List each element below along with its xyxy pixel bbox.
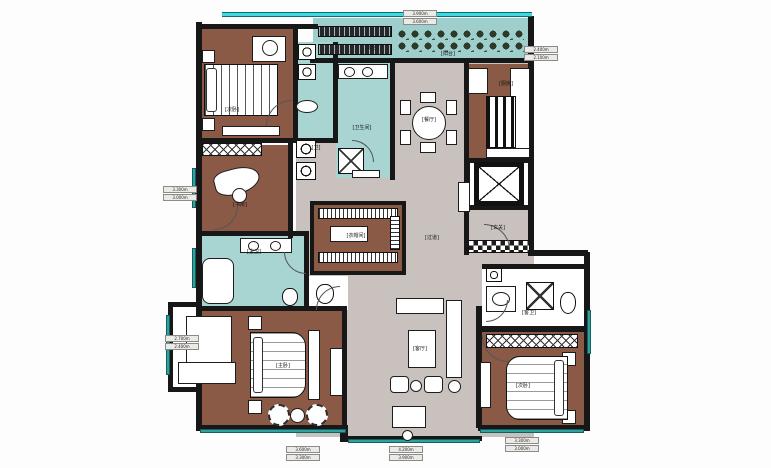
room-label: [客卫] [506, 310, 552, 316]
floor-plan: [阳台][阳台][次卧][卫][卫生间][厨房][餐厅][书房][主卫][衣帽间… [0, 0, 771, 468]
dimension-text: 2.700m [165, 335, 199, 342]
closet-rack [318, 208, 398, 219]
window-bath-left [192, 248, 196, 288]
toilet [560, 292, 576, 314]
dimension-label: 3.600m3.300m [286, 446, 320, 462]
dimension-text: 3.600m [286, 446, 320, 453]
dimension-text: 3.300m [505, 437, 539, 444]
wall-segment [310, 201, 314, 275]
piano [392, 406, 426, 428]
dimension-text: 2.400m [524, 46, 558, 53]
room-label: [书房] [217, 202, 263, 208]
bench [308, 330, 320, 400]
corner-table [448, 380, 461, 393]
toilet-top [298, 64, 316, 80]
tv-cabinet [222, 126, 280, 136]
wall-segment [288, 143, 293, 238]
wall-segment [528, 250, 588, 256]
dryer [296, 162, 316, 180]
toilet [282, 288, 298, 306]
room-label: [厨房] [483, 81, 529, 87]
closet-rack-side [390, 216, 400, 250]
armchair [390, 376, 409, 393]
window-bedroom-right-bottom [480, 429, 584, 433]
room-label: [阳台] [425, 51, 471, 57]
nightstand [202, 118, 215, 131]
pillow [554, 360, 564, 416]
window-right-side [587, 310, 591, 354]
room-label: [主卧] [260, 363, 306, 369]
dimension-label: 2.700m2.400m [165, 335, 199, 351]
console-table [458, 182, 470, 212]
wall-segment [310, 58, 532, 63]
dining-table [412, 106, 446, 140]
kitchen-counter [486, 148, 530, 158]
basin [344, 67, 355, 77]
room-label: [阳台] [349, 45, 395, 51]
room-label: [衣帽间] [333, 233, 379, 239]
window-living-bottom [348, 439, 480, 443]
dimension-text: 4.200m [389, 446, 423, 453]
washer [486, 268, 502, 282]
dimension-label: 3.900m3.600m [403, 10, 437, 26]
nightstand [202, 50, 215, 63]
dresser-mirror [262, 40, 278, 56]
room-label: [主卫] [231, 249, 277, 255]
dimension-label: 2.400m2.100m [524, 46, 558, 62]
room-label: [客厅] [397, 346, 443, 352]
dimension-label: 3.300m3.000m [505, 437, 539, 453]
wall-segment [310, 201, 406, 205]
wall-segment [390, 58, 395, 180]
room-label: [过道] [409, 235, 455, 241]
dimension-label: 4.200m3.900m [389, 446, 423, 462]
dining-chair [446, 130, 457, 145]
armchair [424, 376, 443, 393]
pillow [206, 68, 217, 112]
window-top [222, 12, 532, 17]
dining-chair [446, 100, 457, 115]
dimension-label: 3.300m3.000m [163, 186, 197, 202]
kitchen-cabinet [486, 96, 516, 148]
room-label: [餐厅] [406, 117, 452, 123]
closet-rack [318, 252, 398, 263]
side-table [290, 408, 305, 423]
elevator-shaft [474, 162, 524, 206]
dimension-text: 3.900m [403, 10, 437, 17]
sink-top [296, 100, 318, 113]
window-master-bottom [200, 429, 346, 433]
dining-chair [400, 100, 411, 115]
tv-cabinet [480, 362, 491, 408]
study-shelf [202, 143, 262, 156]
bathtub [202, 258, 234, 304]
sofa [446, 300, 462, 378]
desk-chair [232, 188, 247, 203]
dimension-text: 3.600m [403, 18, 437, 25]
dimension-text: 3.000m [505, 445, 539, 452]
dimension-text: 3.300m [286, 454, 320, 461]
dimension-text: 3.300m [163, 186, 197, 193]
basin [362, 67, 373, 77]
wall-segment [310, 271, 406, 275]
nightstand [248, 316, 262, 330]
room-label: [玄关] [475, 225, 521, 231]
room-label: [次卧] [209, 107, 255, 113]
bath-mat [352, 170, 380, 178]
dining-chair [420, 142, 436, 153]
wall-segment [196, 24, 318, 29]
dining-chair [420, 92, 436, 103]
shower [526, 282, 554, 310]
drying-rack [318, 26, 392, 37]
wall-segment [196, 231, 308, 236]
room-label: [卫生间] [339, 125, 385, 131]
room-label: [卫] [293, 145, 339, 151]
sofa [396, 298, 444, 314]
wall-segment [333, 42, 338, 140]
tv-cabinet [330, 348, 343, 396]
nightstand [248, 400, 262, 414]
dining-chair [400, 130, 411, 145]
dimension-text: 3.900m [389, 454, 423, 461]
dimension-text: 2.400m [165, 343, 199, 350]
wall-segment [478, 326, 586, 332]
wall-segment [168, 387, 200, 392]
lounge-chair [306, 404, 328, 426]
dimension-text: 2.100m [524, 54, 558, 61]
washer [298, 44, 316, 60]
room-label: [次卧] [500, 383, 546, 389]
lounge-chair [268, 404, 290, 426]
side-table [410, 380, 422, 392]
piano-stool [402, 430, 413, 441]
dimension-text: 3.000m [163, 194, 197, 201]
wall-segment [402, 201, 406, 275]
bay-sill [178, 362, 236, 384]
